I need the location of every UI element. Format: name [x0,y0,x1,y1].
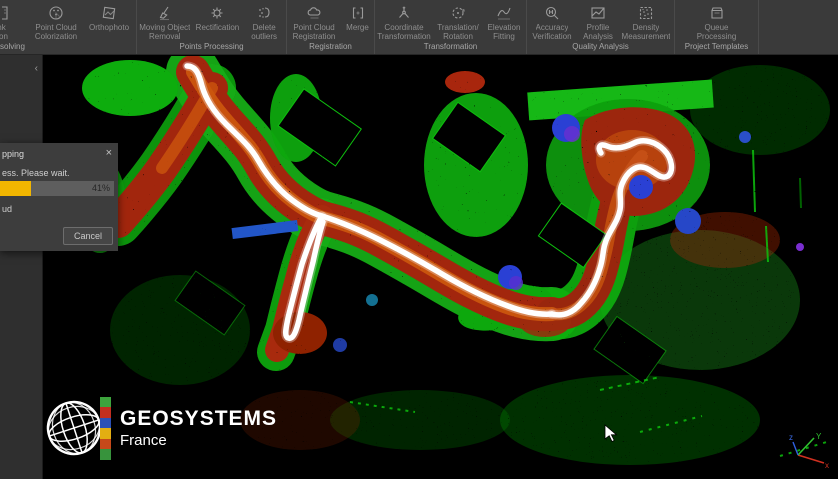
panel-collapse-chevron-icon[interactable]: ‹ [35,63,38,74]
progress-dialog: pping × ess. Please wait. 41% ud Cancel [0,143,118,251]
group-label-transformation: Transformation [375,42,526,54]
toolbar-group-quality-analysis: Accuracy Verification Profile Analysis D… [527,0,675,54]
logo-region-text: France [120,432,277,449]
close-icon[interactable]: × [106,147,112,159]
toolbar-item-queue-processing[interactable]: Queue Processing [675,3,758,41]
delete-outliers-icon [255,3,273,22]
point-cloud-colorization-icon [47,3,65,22]
toolbar-item-profile-analysis[interactable]: Profile Analysis [577,3,619,41]
toolbar-item-delete-outliers[interactable]: Delete outliers [242,3,286,41]
group-label-project-templates: Project Templates [675,42,758,54]
axis-y-label: Y [816,432,822,441]
toolbar-spacer [759,0,838,54]
axis-z-label: z [789,433,793,442]
cancel-button[interactable]: Cancel [63,227,113,245]
toolbar-item-point-cloud-colorization[interactable]: Point Cloud Colorization [29,3,83,41]
density-measurement-icon [637,3,655,22]
application-window: nk tion Point Cloud Colorization Orthoph… [0,0,838,479]
rectification-icon [208,3,226,22]
clipped-icon [0,3,11,22]
progress-bar-fill [0,181,31,196]
dialog-message: ess. Please wait. [2,168,70,178]
group-label-points-processing: Points Processing [137,42,286,54]
toolbar-item-orthophoto[interactable]: Orthophoto [83,3,135,41]
merge-icon [349,3,367,22]
toolbar-item-elevation-fitting[interactable]: Elevation Fitting [483,3,525,41]
toolbar-group-registration: Point Cloud Registration Merge Registrat… [287,0,375,54]
mouse-cursor [604,424,620,444]
orthophoto-icon [100,3,118,22]
toolbar-item-density-measurement[interactable]: Density Measurement [619,3,673,41]
toolbar-item-point-cloud-registration[interactable]: Point Cloud Registration [287,3,341,41]
group-label-solving: solving [0,42,136,54]
moving-object-removal-icon [156,3,174,22]
dialog-title: pping [2,149,24,159]
elevation-fitting-icon [495,3,513,22]
progress-percent: 41% [92,183,110,193]
toolbar-item-accuracy-verification[interactable]: Accuracy Verification [527,3,577,41]
toolbar-item-moving-object-removal[interactable]: Moving Object Removal [137,3,193,41]
logo-brand-text: GEOSYSTEMS [120,407,277,430]
toolbar-item-coordinate-transformation[interactable]: Coordinate Transformation [375,3,433,41]
logo-color-strip [100,397,111,460]
geosystems-logo: GEOSYSTEMS France [44,394,277,462]
dialog-detail: ud [2,204,12,214]
translation-rotation-icon [449,3,467,22]
group-label-quality-analysis: Quality Analysis [527,42,674,54]
accuracy-verification-icon [543,3,561,22]
point-cloud-registration-icon [305,3,323,22]
toolbar-item-clipped[interactable]: nk tion [0,3,29,41]
toolbar-group-solving: nk tion Point Cloud Colorization Orthoph… [0,0,137,54]
toolbar-item-translation-rotation[interactable]: Translation/ Rotation [433,3,483,41]
axis-x-label: x [825,461,829,470]
axis-gizmo: x Y z [786,430,834,474]
coordinate-transformation-icon [395,3,413,22]
progress-bar: 41% [0,181,114,196]
toolbar-group-project-templates: Queue Processing Project Templates [675,0,759,54]
toolbar-group-transformation: Coordinate Transformation Translation/ R… [375,0,527,54]
left-panel: ‹ [0,55,43,479]
queue-processing-icon [708,3,726,22]
ribbon-toolbar: nk tion Point Cloud Colorization Orthoph… [0,0,838,55]
group-label-registration: Registration [287,42,374,54]
toolbar-item-rectification[interactable]: Rectification [193,3,243,41]
toolbar-item-merge[interactable]: Merge [341,3,374,41]
globe-icon [44,394,108,462]
toolbar-group-points-processing: Moving Object Removal Rectification Dele… [137,0,287,54]
profile-analysis-icon [589,3,607,22]
